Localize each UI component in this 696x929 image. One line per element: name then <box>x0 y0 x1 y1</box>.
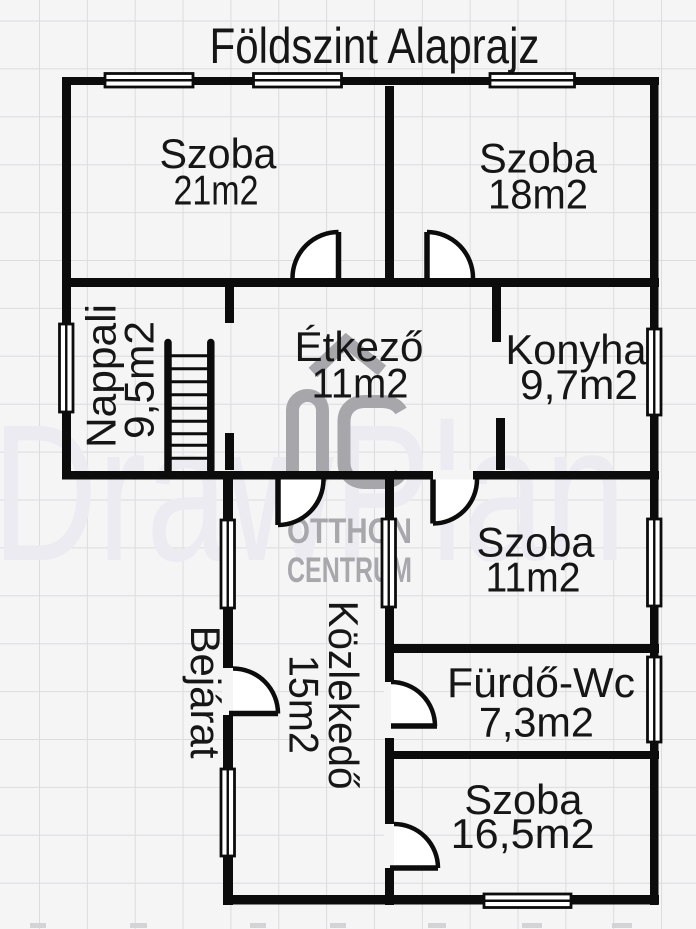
svg-text:9,5m2: 9,5m2 <box>116 321 163 439</box>
svg-text:Bejárat: Bejárat <box>182 626 229 759</box>
svg-text:18m2: 18m2 <box>488 170 588 217</box>
svg-text:7,3m2: 7,3m2 <box>479 698 594 745</box>
svg-text:15m2: 15m2 <box>281 655 328 754</box>
svg-text:11m2: 11m2 <box>312 359 409 406</box>
svg-text:Földszint Alaprajz: Földszint Alaprajz <box>210 18 540 74</box>
svg-text:11m2: 11m2 <box>486 554 581 601</box>
svg-text:9,7m2: 9,7m2 <box>520 361 638 408</box>
svg-text:16,5m2: 16,5m2 <box>451 810 595 857</box>
svg-text:21m2: 21m2 <box>174 166 259 213</box>
